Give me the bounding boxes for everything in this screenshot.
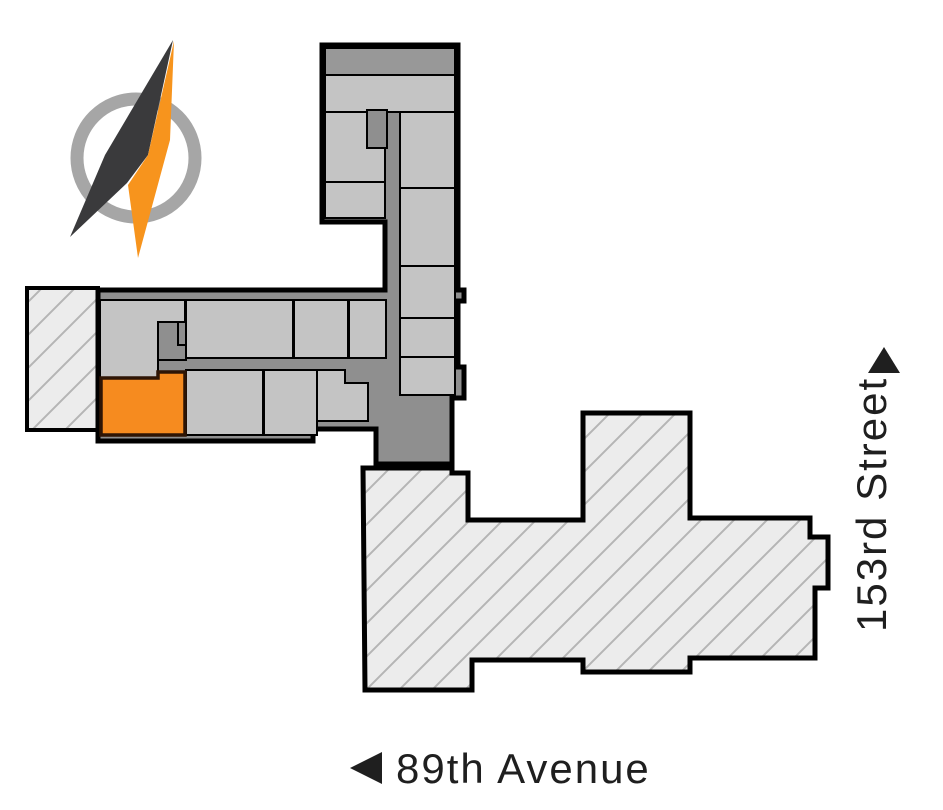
room [400,112,455,188]
north-arrow-icon [868,347,900,373]
site-plan-page: 89th Avenue 153rd Street [0,0,943,810]
avenue-label-group: 89th Avenue [350,745,651,792]
elevator-core [367,110,387,148]
room [325,182,385,218]
room [400,188,455,266]
core-band [325,48,455,75]
room [325,75,455,112]
room [400,357,455,395]
highlighted-unit[interactable] [101,372,185,435]
room [400,318,455,357]
avenue-label: 89th Avenue [396,745,651,792]
compass-icon [70,40,195,258]
street-label: 153rd Street [848,377,895,632]
room [294,300,348,358]
room [400,266,455,318]
street-label-group: 153rd Street [848,347,900,632]
room [186,370,263,435]
room [349,300,386,358]
room [186,300,293,358]
west-arrow-icon [350,752,382,784]
room [264,370,317,435]
site-plan-canvas: 89th Avenue 153rd Street [0,0,943,810]
adjacent-building-west [27,288,98,430]
